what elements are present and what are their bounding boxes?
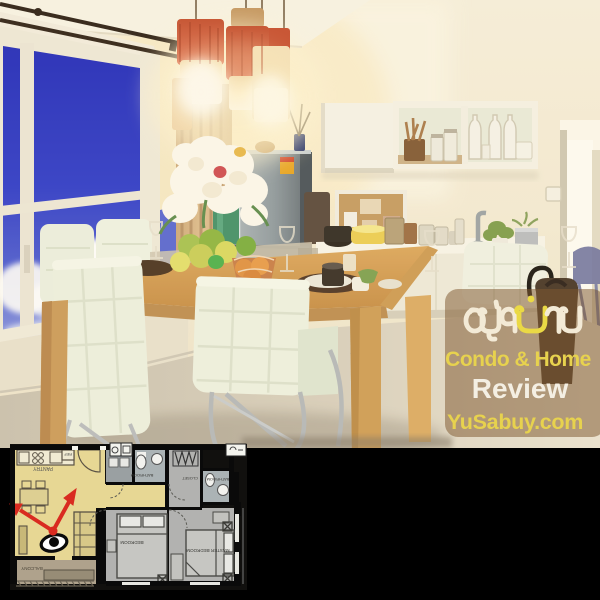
svg-text:CLOSET: CLOSET [181, 476, 198, 481]
svg-text:PANTRY: PANTRY [32, 465, 52, 471]
svg-text:BALCONY: BALCONY [21, 566, 43, 571]
svg-text:BATHROOM: BATHROOM [207, 477, 230, 482]
svg-text:BATHROOM: BATHROOM [131, 473, 154, 478]
svg-text:MASTER BEDROOM: MASTER BEDROOM [186, 548, 230, 553]
svg-text:YuSabuy.com: YuSabuy.com [447, 410, 583, 434]
svg-text:BEDROOM: BEDROOM [120, 540, 144, 545]
svg-text:Review: Review [472, 373, 569, 404]
svg-text:Condo & Home: Condo & Home [445, 348, 591, 371]
svg-text:REF: REF [63, 452, 72, 457]
